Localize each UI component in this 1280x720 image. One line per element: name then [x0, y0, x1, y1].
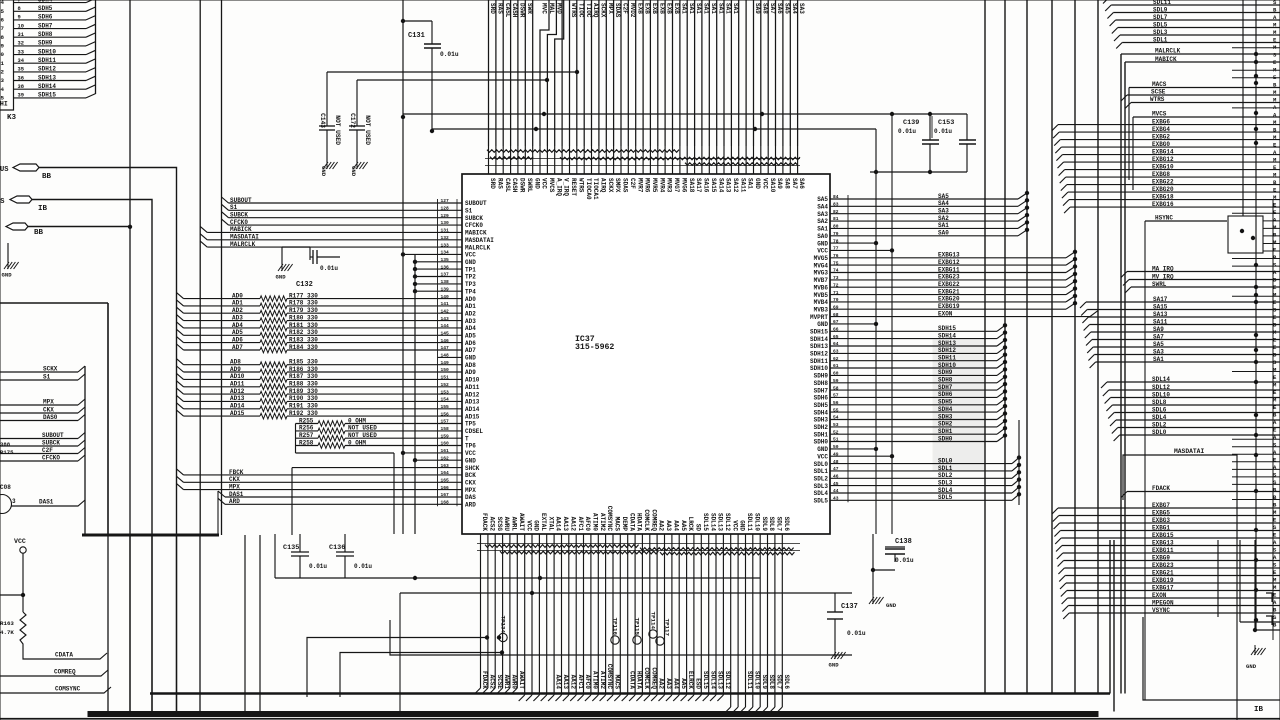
svg-text:SDL10: SDL10 — [753, 671, 760, 689]
svg-text:SA8: SA8 — [784, 178, 791, 189]
svg-text:MVG3: MVG3 — [814, 270, 829, 277]
svg-text:10: 10 — [0, 51, 4, 58]
svg-text:COMSYNC: COMSYNC — [606, 506, 613, 532]
svg-text:MAL: MAL — [548, 3, 555, 14]
svg-text:RESET: RESET — [570, 178, 577, 196]
svg-text:NOT USED: NOT USED — [334, 115, 341, 145]
svg-text:148: 148 — [441, 353, 450, 359]
svg-text:R185 330: R185 330 — [289, 359, 318, 366]
svg-text:62: 62 — [833, 356, 839, 362]
svg-text:0 OHM: 0 OHM — [348, 439, 366, 446]
svg-text:AD0: AD0 — [232, 292, 243, 299]
svg-text:SDL6: SDL6 — [783, 517, 790, 532]
svg-text:ATIM2: ATIM2 — [599, 671, 606, 689]
svg-text:SDL13: SDL13 — [717, 513, 724, 531]
svg-text:TP1: TP1 — [465, 266, 476, 273]
svg-text:HDATA: HDATA — [636, 671, 643, 689]
svg-text:13: 13 — [0, 77, 4, 84]
svg-text:35: 35 — [18, 67, 24, 73]
svg-text:3: 3 — [12, 498, 16, 505]
svg-text:49: 49 — [833, 451, 839, 457]
svg-text:EXBG11: EXBG11 — [1152, 547, 1174, 554]
svg-text:SDL0: SDL0 — [814, 461, 829, 468]
svg-text:ARD: ARD — [229, 498, 240, 505]
svg-text:SDL11: SDL11 — [1153, 0, 1171, 6]
svg-text:138: 138 — [441, 279, 450, 285]
svg-text:AA3: AA3 — [665, 520, 672, 531]
svg-text:GND: GND — [2, 272, 13, 279]
svg-text:AA5: AA5 — [680, 520, 687, 531]
svg-text:TP3: TP3 — [465, 281, 476, 288]
svg-text:GND: GND — [817, 240, 828, 247]
svg-text:SA3: SA3 — [817, 211, 828, 218]
svg-text:SDL11: SDL11 — [746, 671, 753, 689]
svg-text:65: 65 — [833, 334, 839, 340]
svg-text:136: 136 — [441, 264, 450, 270]
svg-text:76: 76 — [833, 253, 839, 259]
svg-text:SDH14: SDH14 — [938, 332, 956, 339]
svg-text:SA11: SA11 — [739, 178, 746, 193]
svg-text:AFC1: AFC1 — [577, 517, 584, 532]
svg-text:SDH7: SDH7 — [38, 22, 53, 29]
svg-text:46: 46 — [833, 474, 839, 480]
svg-text:BB: BB — [34, 229, 44, 237]
svg-text:VCC: VCC — [465, 252, 476, 259]
svg-text:SDH14: SDH14 — [38, 83, 56, 90]
svg-text:MVB6: MVB6 — [814, 284, 829, 291]
svg-text:SMPX: SMPX — [614, 178, 621, 193]
svg-text:D9: D9 — [0, 43, 4, 50]
svg-text:SDL4: SDL4 — [814, 490, 829, 497]
svg-text:VCC: VCC — [14, 538, 26, 545]
svg-text:SDH7: SDH7 — [938, 384, 953, 391]
svg-text:MALRCLK: MALRCLK — [230, 241, 256, 248]
svg-text:AD11: AD11 — [465, 384, 480, 391]
svg-text:CASH: CASH — [511, 178, 518, 193]
svg-text:EXBG6: EXBG6 — [1152, 118, 1170, 125]
svg-text:AIRQ: AIRQ — [592, 3, 599, 18]
svg-text:AD14: AD14 — [230, 403, 245, 410]
svg-text:R183 330: R183 330 — [289, 336, 318, 343]
svg-text:74: 74 — [833, 268, 839, 274]
svg-text:SDH5: SDH5 — [938, 399, 953, 406]
svg-text:R256: R256 — [299, 425, 314, 432]
svg-text:SA13: SA13 — [1153, 311, 1168, 318]
svg-text:SA10: SA10 — [769, 178, 776, 193]
svg-text:S1: S1 — [43, 374, 51, 381]
svg-text:SA9: SA9 — [754, 3, 761, 14]
svg-text:MALRCLK: MALRCLK — [465, 244, 491, 251]
svg-text:CKX: CKX — [229, 476, 240, 483]
svg-text:GND: GND — [350, 166, 357, 177]
svg-text:AD15: AD15 — [230, 410, 245, 417]
svg-text:SDL14: SDL14 — [1152, 376, 1170, 383]
svg-text:77: 77 — [833, 246, 839, 252]
svg-text:AD4: AD4 — [465, 325, 476, 332]
svg-text:AA2: AA2 — [658, 678, 665, 689]
svg-text:9: 9 — [18, 15, 21, 21]
svg-text:32: 32 — [18, 41, 24, 47]
svg-text:SDH11: SDH11 — [38, 57, 56, 64]
svg-text:AD12: AD12 — [465, 391, 480, 398]
svg-text:SA5: SA5 — [784, 3, 791, 14]
svg-text:315-5962: 315-5962 — [575, 343, 614, 352]
svg-text:CKX: CKX — [465, 480, 476, 487]
svg-text:AA5: AA5 — [680, 678, 687, 689]
svg-text:56: 56 — [833, 400, 839, 406]
svg-text:C2F: C2F — [622, 3, 629, 14]
svg-text:AA3: AA3 — [665, 678, 672, 689]
svg-text:T: T — [465, 435, 469, 442]
svg-text:SDH5: SDH5 — [38, 5, 53, 12]
svg-text:FBCK: FBCK — [229, 469, 244, 476]
svg-text:SA15: SA15 — [710, 178, 717, 193]
svg-text:AFC0: AFC0 — [584, 675, 591, 690]
svg-text:AD6: AD6 — [232, 336, 243, 343]
svg-text:150: 150 — [441, 367, 450, 373]
svg-text:SA1: SA1 — [681, 3, 688, 14]
svg-text:C2F: C2F — [629, 178, 636, 189]
svg-text:TP4: TP4 — [465, 288, 476, 295]
svg-text:C08: C08 — [0, 484, 11, 491]
svg-text:AD8: AD8 — [230, 359, 241, 366]
svg-text:CFCK0: CFCK0 — [230, 219, 248, 226]
svg-text:34: 34 — [18, 58, 25, 64]
svg-text:MACS: MACS — [614, 675, 621, 690]
svg-text:MPX: MPX — [465, 487, 476, 494]
svg-text:MVCS: MVCS — [1152, 111, 1167, 118]
svg-text:TP114: TP114 — [650, 612, 657, 630]
svg-text:EXBG4: EXBG4 — [1152, 126, 1170, 133]
svg-text:K3: K3 — [7, 114, 17, 122]
svg-text:COMREQ: COMREQ — [650, 509, 657, 531]
svg-text:145: 145 — [441, 331, 450, 337]
svg-text:NOT USED: NOT USED — [348, 432, 377, 439]
svg-text:63: 63 — [833, 349, 839, 355]
svg-text:EXB: EXB — [644, 3, 651, 14]
svg-text:147: 147 — [441, 345, 450, 351]
svg-text:14: 14 — [0, 86, 4, 93]
svg-text:SA7: SA7 — [791, 178, 798, 189]
svg-text:AD3: AD3 — [465, 318, 476, 325]
svg-text:SD: SD — [695, 524, 702, 532]
svg-text:C2F: C2F — [42, 447, 53, 454]
svg-text:SDH7: SDH7 — [814, 387, 829, 394]
svg-text:SA13: SA13 — [725, 178, 732, 193]
svg-text:R190 330: R190 330 — [289, 395, 318, 402]
svg-text:GND: GND — [754, 178, 761, 189]
svg-text:151: 151 — [441, 375, 450, 381]
svg-text:43: 43 — [833, 496, 839, 502]
svg-text:139: 139 — [441, 286, 450, 292]
svg-text:EXB: EXB — [636, 3, 643, 14]
svg-text:81: 81 — [833, 216, 839, 222]
svg-text:SDL5: SDL5 — [814, 498, 829, 505]
svg-text:CASH: CASH — [511, 3, 518, 18]
svg-text:ACS2: ACS2 — [489, 675, 496, 690]
svg-text:MVCS: MVCS — [548, 178, 555, 193]
svg-text:AWR0: AWR0 — [511, 675, 518, 690]
svg-text:SDH12: SDH12 — [938, 347, 956, 354]
svg-text:ARD: ARD — [465, 502, 476, 509]
svg-text:SDL5: SDL5 — [1153, 21, 1168, 28]
svg-text:SA0: SA0 — [938, 230, 949, 237]
svg-text:D6: D6 — [0, 17, 4, 24]
svg-text:SA3: SA3 — [1153, 348, 1164, 355]
svg-text:R191 330: R191 330 — [289, 403, 318, 410]
svg-text:GND: GND — [276, 274, 287, 281]
svg-text:SDH1: SDH1 — [814, 431, 829, 438]
svg-text:SWRL: SWRL — [1152, 281, 1167, 288]
svg-text:EXBG3: EXBG3 — [1152, 517, 1170, 524]
svg-text:10: 10 — [18, 23, 24, 29]
svg-text:SA6: SA6 — [776, 3, 783, 14]
svg-text:GND: GND — [465, 355, 476, 362]
svg-text:AD4: AD4 — [232, 322, 243, 329]
svg-text:69: 69 — [833, 304, 839, 310]
svg-text:83: 83 — [833, 202, 839, 208]
svg-text:SDL9: SDL9 — [761, 517, 768, 532]
svg-text:MALRCLK: MALRCLK — [1155, 48, 1181, 55]
svg-text:HI: HI — [0, 101, 8, 108]
svg-text:SDH2: SDH2 — [938, 421, 953, 428]
svg-text:IB: IB — [1254, 706, 1264, 714]
svg-text:SA17: SA17 — [695, 178, 702, 193]
svg-text:C132: C132 — [296, 281, 313, 289]
svg-text:SA12: SA12 — [732, 178, 739, 193]
svg-text:DAS1: DAS1 — [39, 499, 54, 506]
svg-text:SDL11: SDL11 — [746, 513, 753, 531]
svg-text:AD1: AD1 — [465, 303, 476, 310]
svg-text:SUBOUT: SUBOUT — [42, 432, 64, 439]
svg-text:SDL9: SDL9 — [1153, 6, 1168, 13]
svg-text:US: US — [0, 166, 8, 174]
svg-text:MVR6: MVR6 — [644, 178, 651, 193]
svg-text:AD10: AD10 — [465, 377, 480, 384]
svg-text:FDACK: FDACK — [481, 671, 488, 689]
svg-text:DAS: DAS — [465, 494, 476, 501]
svg-text:72: 72 — [833, 282, 839, 288]
svg-text:67: 67 — [833, 319, 839, 325]
svg-text:SDL12: SDL12 — [724, 513, 731, 531]
svg-text:TIOCA0: TIOCA0 — [585, 178, 592, 200]
svg-text:MASDATAI: MASDATAI — [1174, 448, 1204, 455]
svg-text:R192 330: R192 330 — [289, 410, 318, 417]
svg-text:C153: C153 — [938, 119, 954, 127]
svg-text:SA5: SA5 — [1153, 341, 1164, 348]
svg-text:SDL2: SDL2 — [938, 472, 953, 479]
svg-text:COMCLK: COMCLK — [643, 667, 650, 689]
svg-text:MVG4: MVG4 — [814, 262, 829, 269]
svg-text:AD13: AD13 — [465, 399, 480, 406]
svg-text:MASDATAI: MASDATAI — [465, 237, 494, 244]
svg-text:C139: C139 — [903, 119, 919, 127]
svg-text:0.01u: 0.01u — [847, 630, 866, 637]
svg-text:SDH5: SDH5 — [814, 402, 829, 409]
svg-text:SDL13: SDL13 — [717, 671, 724, 689]
svg-text:C138: C138 — [895, 538, 912, 546]
svg-text:SA3: SA3 — [798, 3, 805, 14]
svg-text:EXBG9: EXBG9 — [1152, 554, 1170, 561]
svg-text:38: 38 — [18, 84, 24, 90]
svg-text:VCC: VCC — [817, 453, 828, 460]
svg-text:SDH11: SDH11 — [810, 358, 828, 365]
svg-text:AD7: AD7 — [232, 344, 243, 351]
svg-text:SDH8: SDH8 — [814, 380, 829, 387]
svg-text:TIOCA1: TIOCA1 — [592, 178, 599, 200]
svg-text:11: 11 — [0, 60, 4, 67]
svg-text:SA4: SA4 — [938, 200, 949, 207]
svg-text:COMSYNC: COMSYNC — [606, 664, 613, 690]
svg-text:0.01u: 0.01u — [309, 563, 327, 570]
svg-text:149: 149 — [441, 360, 450, 366]
svg-text:142: 142 — [441, 308, 450, 314]
svg-text:EXB: EXB — [666, 3, 673, 14]
svg-text:FDACK: FDACK — [481, 513, 488, 531]
svg-text:154: 154 — [441, 397, 450, 403]
svg-text:SA18: SA18 — [688, 178, 695, 193]
svg-text:SDH9: SDH9 — [938, 369, 953, 376]
svg-text:GND: GND — [465, 259, 476, 266]
svg-text:45: 45 — [833, 481, 839, 487]
svg-text:44: 44 — [833, 488, 839, 494]
svg-text:SUBCK: SUBCK — [465, 215, 483, 222]
svg-text:SCSE: SCSE — [496, 675, 503, 690]
svg-text:C135: C135 — [283, 544, 299, 552]
svg-text:SA1: SA1 — [817, 226, 828, 233]
svg-text:SDH14: SDH14 — [810, 336, 828, 343]
svg-text:SDH10: SDH10 — [810, 365, 828, 372]
svg-text:SWRL: SWRL — [526, 178, 533, 193]
svg-text:GND: GND — [533, 178, 540, 189]
svg-text:SDH12: SDH12 — [810, 351, 828, 358]
svg-text:R181 330: R181 330 — [289, 322, 318, 329]
svg-text:TP117: TP117 — [664, 619, 671, 637]
svg-text:12: 12 — [0, 69, 4, 76]
svg-text:BB: BB — [42, 173, 52, 181]
svg-text:R257: R257 — [299, 432, 314, 439]
svg-text:RAS: RAS — [497, 3, 504, 14]
svg-text:AD15: AD15 — [465, 413, 480, 420]
svg-text:R178 330: R178 330 — [289, 300, 318, 307]
svg-text:SDH1: SDH1 — [938, 428, 953, 435]
svg-text:SDH4: SDH4 — [814, 409, 829, 416]
svg-text:AA14: AA14 — [555, 517, 562, 532]
svg-text:57: 57 — [833, 393, 839, 399]
svg-text:133: 133 — [441, 242, 450, 248]
svg-text:EXBG23: EXBG23 — [1152, 562, 1174, 569]
svg-text:58: 58 — [833, 385, 839, 391]
svg-text:AD5: AD5 — [232, 329, 243, 336]
svg-text:0.01u: 0.01u — [934, 128, 952, 135]
svg-text:EXBG17: EXBG17 — [1152, 584, 1174, 591]
svg-text:146: 146 — [441, 338, 450, 344]
svg-text:WTRS: WTRS — [570, 3, 577, 18]
svg-text:SDL2: SDL2 — [1152, 421, 1167, 428]
svg-text:HDATA: HDATA — [636, 513, 643, 531]
svg-text:SDL3: SDL3 — [938, 479, 953, 486]
svg-text:EXBG10: EXBG10 — [1152, 163, 1174, 170]
svg-text:SDH15: SDH15 — [938, 325, 956, 332]
svg-text:0.01u: 0.01u — [898, 128, 916, 135]
svg-text:155: 155 — [441, 404, 450, 410]
svg-text:SDL6: SDL6 — [1152, 406, 1167, 413]
svg-text:R182 330: R182 330 — [289, 329, 318, 336]
svg-text:R255: R255 — [299, 417, 314, 424]
svg-text:C131: C131 — [408, 32, 425, 40]
svg-text:MACS: MACS — [1152, 81, 1167, 88]
svg-text:MPX: MPX — [43, 399, 54, 406]
svg-text:SUBCK: SUBCK — [42, 440, 60, 447]
svg-text:SDH0: SDH0 — [814, 439, 829, 446]
svg-text:134: 134 — [441, 250, 450, 256]
svg-text:52: 52 — [833, 429, 839, 435]
svg-text:MPX: MPX — [607, 3, 614, 14]
svg-text:144: 144 — [441, 323, 450, 329]
svg-text:158: 158 — [441, 426, 450, 432]
svg-text:SDH10: SDH10 — [38, 48, 56, 55]
svg-text:0.01u: 0.01u — [354, 563, 372, 570]
svg-text:39: 39 — [18, 93, 24, 99]
svg-text:SDL10: SDL10 — [753, 513, 760, 531]
svg-text:SA4: SA4 — [817, 204, 828, 211]
svg-text:ACS2: ACS2 — [489, 517, 496, 532]
svg-text:EXBG2: EXBG2 — [1152, 133, 1170, 140]
svg-text:SA11: SA11 — [1153, 318, 1168, 325]
svg-text:EXBG13: EXBG13 — [1152, 539, 1174, 546]
svg-text:EXB: EXB — [651, 3, 658, 14]
svg-text:SUBCK: SUBCK — [230, 212, 248, 219]
svg-text:AD0: AD0 — [465, 296, 476, 303]
svg-text:SDH13: SDH13 — [38, 74, 56, 81]
svg-text:EXBG19: EXBG19 — [938, 303, 960, 310]
svg-text:GND: GND — [1246, 663, 1257, 670]
svg-text:36: 36 — [18, 75, 24, 81]
svg-text:61: 61 — [833, 363, 839, 369]
svg-text:SDH13: SDH13 — [810, 343, 828, 350]
svg-text:131: 131 — [441, 228, 450, 234]
svg-text:160: 160 — [441, 441, 450, 447]
svg-text:EXBG22: EXBG22 — [1152, 178, 1174, 185]
svg-text:66: 66 — [833, 327, 839, 333]
svg-text:SDL9: SDL9 — [761, 675, 768, 690]
svg-text:SCKX: SCKX — [600, 3, 607, 18]
svg-text:AA12: AA12 — [569, 517, 576, 532]
svg-text:TP2: TP2 — [465, 274, 476, 281]
svg-text:MABICK: MABICK — [230, 226, 252, 233]
svg-text:EXBG16: EXBG16 — [1152, 201, 1174, 208]
svg-text:SA16: SA16 — [703, 178, 710, 193]
svg-text:EXBG12: EXBG12 — [938, 259, 960, 266]
svg-text:162: 162 — [441, 455, 450, 461]
svg-text:MVG7: MVG7 — [673, 178, 680, 193]
svg-text:SDL1: SDL1 — [814, 468, 829, 475]
svg-text:SDH6: SDH6 — [38, 14, 53, 21]
svg-text:SDL12: SDL12 — [724, 671, 731, 689]
svg-text:MVB7: MVB7 — [814, 277, 829, 284]
svg-text:33: 33 — [18, 49, 24, 55]
svg-text:EXBG18: EXBG18 — [1152, 193, 1174, 200]
svg-text:COMREQ: COMREQ — [54, 669, 76, 676]
svg-text:MVD2: MVD2 — [629, 3, 636, 18]
svg-text:SA7: SA7 — [769, 3, 776, 14]
svg-text:XTAL: XTAL — [547, 517, 554, 532]
svg-text:SUBOUT: SUBOUT — [465, 200, 487, 207]
svg-text:AWR1: AWR1 — [503, 675, 510, 690]
svg-text:84: 84 — [833, 194, 839, 200]
svg-text:71: 71 — [833, 290, 839, 296]
svg-text:R163: R163 — [0, 620, 14, 627]
